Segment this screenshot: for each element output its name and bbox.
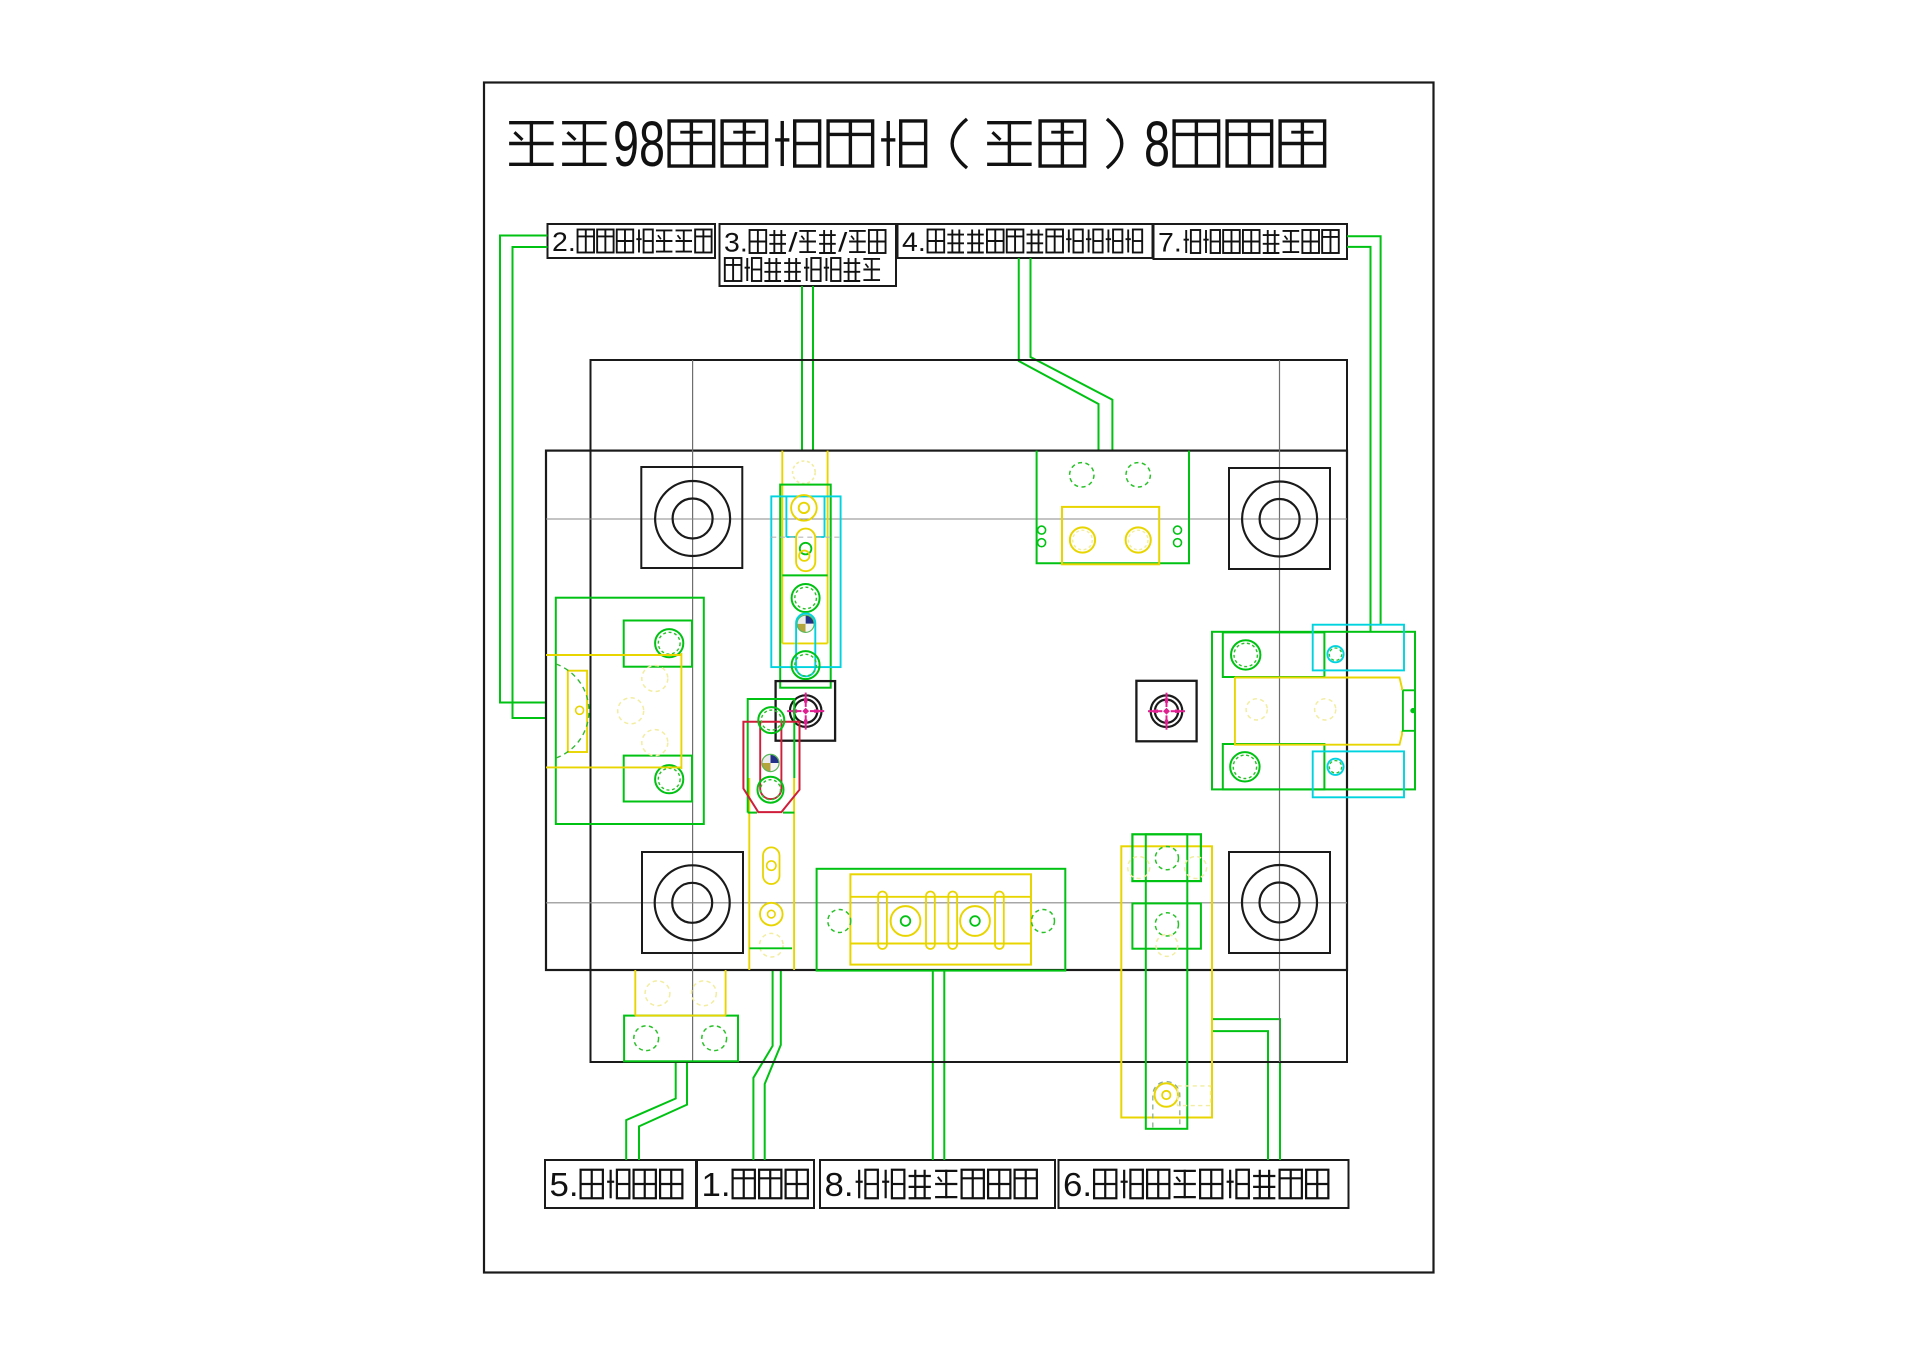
svg-text:/: / [788,227,798,257]
svg-text:/: / [838,227,848,257]
svg-text:7.: 7. [1158,227,1182,257]
svg-text:8.: 8. [825,1166,854,1203]
svg-text:3.: 3. [724,227,748,257]
svg-text:5.: 5. [550,1166,579,1203]
svg-text:8: 8 [1144,108,1170,180]
svg-text:6.: 6. [1063,1166,1092,1203]
svg-text:4.: 4. [902,227,926,257]
svg-text:2.: 2. [552,227,576,257]
svg-text:1.: 1. [702,1166,731,1203]
svg-text:98: 98 [613,108,665,180]
